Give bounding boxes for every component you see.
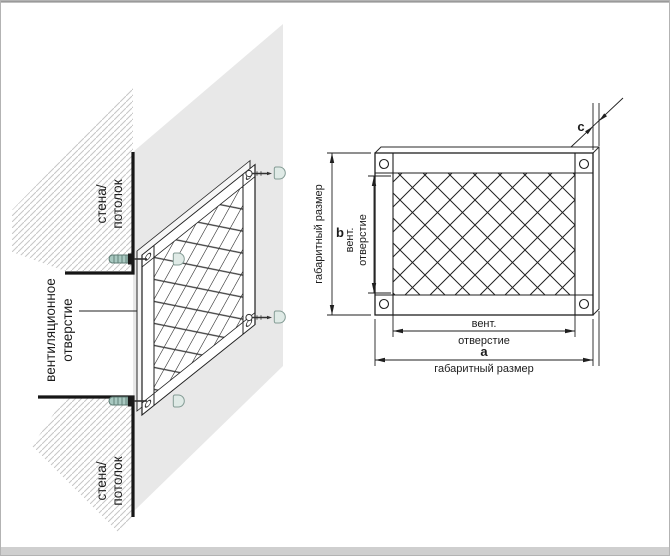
grille-installation-diagram: стена/ потолок вентиляционное отверстие …	[0, 0, 670, 556]
overall-height-label: габаритный размер	[313, 184, 325, 284]
wall-ceiling-label-bottom-line1: стена/	[94, 461, 109, 500]
corner-hole	[580, 160, 589, 169]
page-bottom-band	[0, 547, 670, 556]
dim-letter-c: c	[577, 119, 584, 134]
overall-width-label: габаритный размер	[434, 363, 534, 375]
corner-hole	[380, 300, 389, 309]
wall-ceiling-label-top-line2: потолок	[110, 179, 125, 228]
vent-opening-label-line1: вентиляционное	[43, 278, 58, 382]
vent-height-label-line2: отверстие	[357, 214, 369, 266]
cap-bottom-right	[274, 311, 285, 323]
wall-ceiling-label-top-line1: стена/	[94, 184, 109, 223]
corner-hole	[580, 300, 589, 309]
vent-opening-label-line2: отверстие	[60, 298, 75, 361]
cap-top-left	[173, 253, 184, 265]
diagram-page: стена/ потолок вентиляционное отверстие …	[0, 0, 670, 556]
cap-bottom-left	[173, 395, 184, 407]
vent-height-label-line1: вент.	[344, 228, 356, 253]
cap-top-right	[274, 167, 285, 179]
vent-width-label-line1: вент.	[472, 318, 497, 330]
grille-mesh-front	[393, 173, 575, 295]
corner-hole	[380, 160, 389, 169]
dim-letter-b: b	[336, 225, 344, 240]
dim-letter-a: a	[480, 344, 488, 359]
wall-ceiling-label-bottom-line2: потолок	[110, 456, 125, 505]
